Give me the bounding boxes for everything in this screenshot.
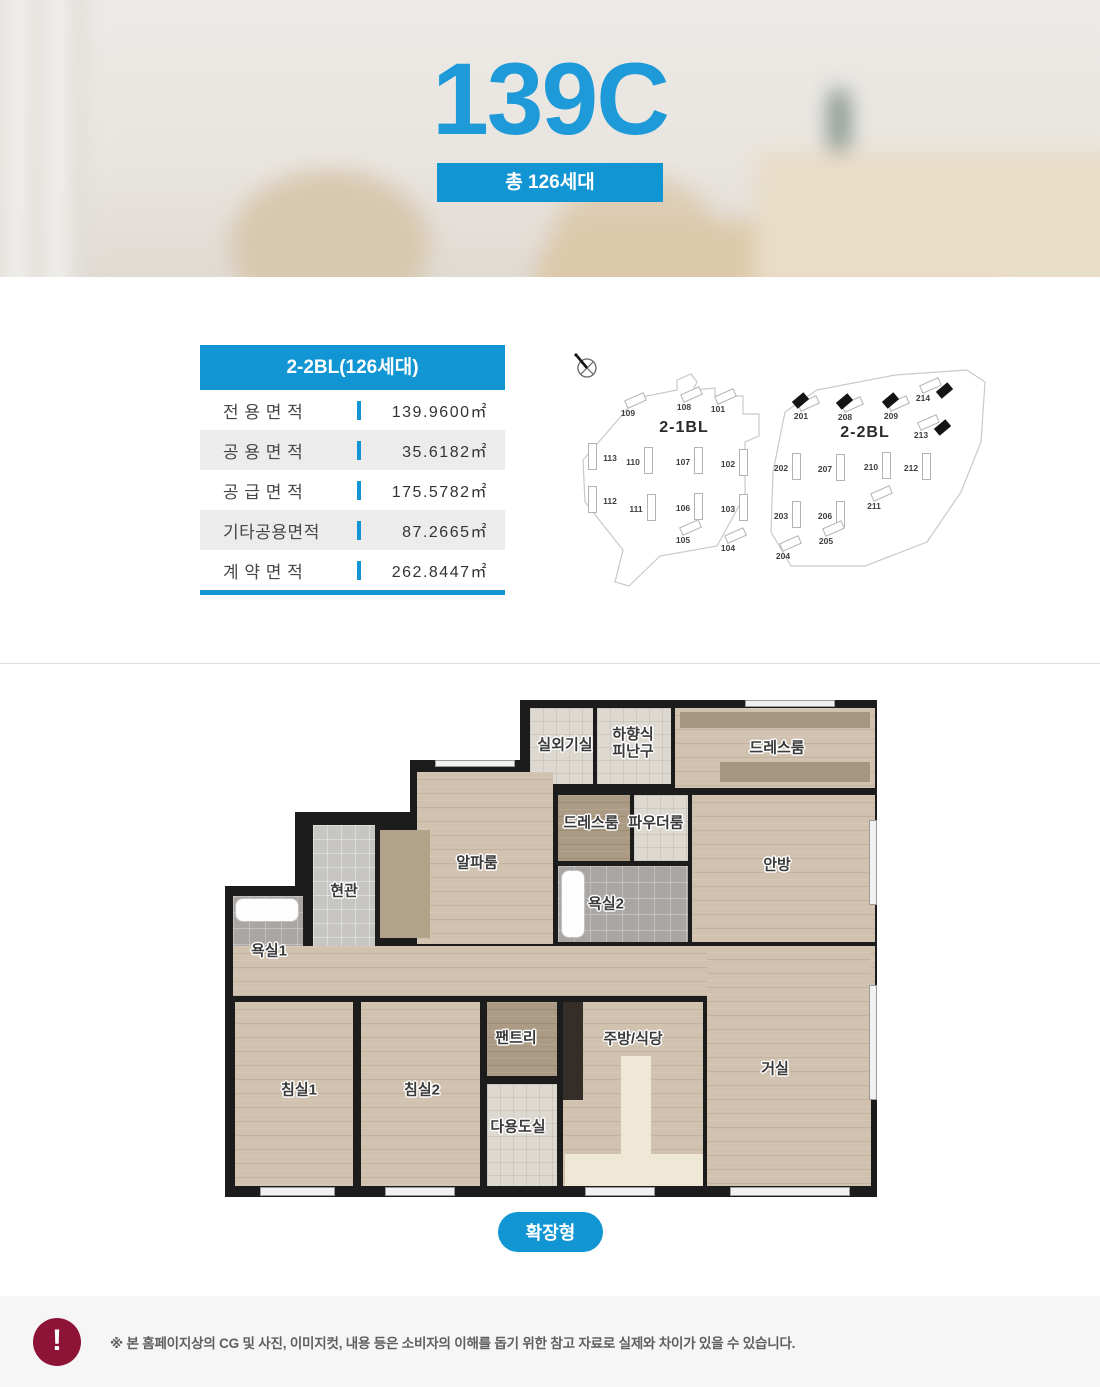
building-number: 201 [794,411,808,421]
window-strip [869,820,877,905]
room-label-powder-room: 파우더룸 [628,814,683,831]
window-strip [585,1187,655,1196]
building-number: 205 [819,536,833,546]
building-footprint [739,494,748,521]
row-divider-bar [357,481,361,500]
row-divider-bar [357,441,361,460]
compass-north-icon [574,353,596,377]
area-row-label: 공 용 면 적 [223,438,351,463]
block-label-2-1BL: 2-1BL [659,419,708,437]
building-number: 109 [621,408,635,418]
building-footprint [647,494,656,521]
area-row-value: 175.5782㎡ [367,478,488,502]
building-number: 203 [774,511,788,521]
building-footprint [588,443,597,470]
building-number: 210 [864,462,878,472]
building-number: 106 [676,503,690,513]
building-number: 214 [916,393,930,403]
building-footprint [644,447,653,474]
building-footprint [694,447,703,474]
kitchen-counter [565,1154,703,1186]
area-table-bottom-bar [200,590,505,595]
window-strip [435,760,515,767]
area-row-value: 87.2665㎡ [367,518,488,542]
kitchen-cabinet [563,1002,583,1100]
building-number: 108 [677,402,691,412]
window-strip [730,1187,850,1196]
area-table-row-3: 기타공용면적87.2665㎡ [200,510,505,550]
room-label-bathroom-2: 욕실2 [588,895,624,912]
room-label-bathroom-1: 욕실1 [251,942,287,959]
row-divider-bar [357,401,361,420]
site-map: 2-1BL10910810111311010710211211110610310… [565,350,990,600]
wardrobe [680,712,870,728]
building-number: 207 [818,464,832,474]
area-info-table: 2-2BL(126세대) 전 용 면 적139.9600㎡공 용 면 적35.6… [200,345,505,595]
building-footprint [792,501,801,528]
room-label-bedroom-1: 침실1 [281,1081,317,1098]
exclamation-icon: ! [33,1318,81,1366]
room-label-utility-room: 다용도실 [490,1118,545,1135]
room-label-master-bedroom: 안방 [763,856,791,873]
area-row-value: 139.9600㎡ [367,398,488,422]
area-table-row-0: 전 용 면 적139.9600㎡ [200,390,505,430]
building-footprint [922,453,931,480]
building-number: 206 [818,511,832,521]
room-label-escape-hatch: 하향식 피난구 [612,726,653,761]
building-number: 211 [867,501,881,511]
building-number: 213 [914,430,928,440]
building-footprint [739,449,748,476]
area-row-label: 공 급 면 적 [223,478,351,503]
area-row-label: 기타공용면적 [223,518,351,543]
wardrobe [720,762,870,782]
bathtub [235,898,299,922]
window-strip [869,985,877,1100]
building-number: 101 [711,404,725,414]
hero-banner: 139C 총 126세대 [0,0,1100,277]
building-number: 112 [603,496,617,506]
row-divider-bar [357,521,361,540]
room-label-bedroom-2: 침실2 [404,1081,440,1098]
area-table-rows: 전 용 면 적139.9600㎡공 용 면 적35.6182㎡공 급 면 적17… [200,390,505,590]
block-label-2-2BL: 2-2BL [840,424,889,442]
room-label-outdoor-unit: 실외기실 [537,736,592,753]
bathtub [561,870,585,938]
unit-type-title: 139C [0,48,1100,150]
building-number: 208 [838,412,852,422]
area-row-label: 계 약 면 적 [223,558,351,583]
building-number: 113 [603,453,617,463]
expand-type-button[interactable]: 확장형 [498,1212,603,1252]
total-units-badge: 총 126세대 [437,163,663,202]
floorplan: 실외기실하향식 피난구드레스룸알파룸드레스룸파우더룸안방현관욕실2욕실1침실1침… [225,700,877,1197]
building-number: 209 [884,411,898,421]
building-number: 202 [774,463,788,473]
area-table-row-4: 계 약 면 적262.8447㎡ [200,550,505,590]
building-footprint [882,452,891,479]
room-label-dressroom-master: 드레스룸 [749,739,804,756]
area-table-row-1: 공 용 면 적35.6182㎡ [200,430,505,470]
building-footprint [694,493,703,520]
window-strip [385,1187,455,1196]
disclaimer-section: ! ※ 본 홈페이지상의 CG 및 사진, 이미지컷, 내용 등은 소비자의 이… [0,1296,1100,1387]
window-strip [745,700,835,707]
row-divider-bar [357,561,361,580]
room-label-living-room: 거실 [761,1060,789,1077]
building-number: 103 [721,504,735,514]
unit-139c-page: 139C 총 126세대 2-2BL(126세대) 전 용 면 적139.960… [0,0,1100,1387]
room-label-kitchen-dining: 주방/식당 [603,1030,662,1047]
building-number: 102 [721,459,735,469]
building-number: 212 [904,463,918,473]
building-number: 204 [776,551,790,561]
hero-bg-sideboard [755,150,1100,277]
building-number: 111 [629,504,642,514]
room-label-entrance: 현관 [330,882,358,899]
area-row-label: 전 용 면 적 [223,398,351,423]
area-table-row-2: 공 급 면 적175.5782㎡ [200,470,505,510]
entry-closet [380,830,430,938]
building-number: 110 [626,457,640,467]
section-divider [0,663,1100,664]
area-row-value: 35.6182㎡ [367,438,488,462]
building-number: 105 [676,535,690,545]
disclaimer-text: ※ 본 홈페이지상의 CG 및 사진, 이미지컷, 내용 등은 소비자의 이해를… [110,1296,795,1387]
window-strip [260,1187,335,1196]
building-number: 107 [676,457,690,467]
area-row-value: 262.8447㎡ [367,558,488,582]
building-footprint [588,486,597,513]
building-footprint [836,454,845,481]
area-table-header: 2-2BL(126세대) [200,345,505,390]
building-footprint [792,453,801,480]
room-label-pantry: 팬트리 [495,1029,536,1046]
room-label-dressroom-2: 드레스룸 [563,814,618,831]
room-label-alpha-room: 알파룸 [456,854,497,871]
building-number: 104 [721,543,735,553]
